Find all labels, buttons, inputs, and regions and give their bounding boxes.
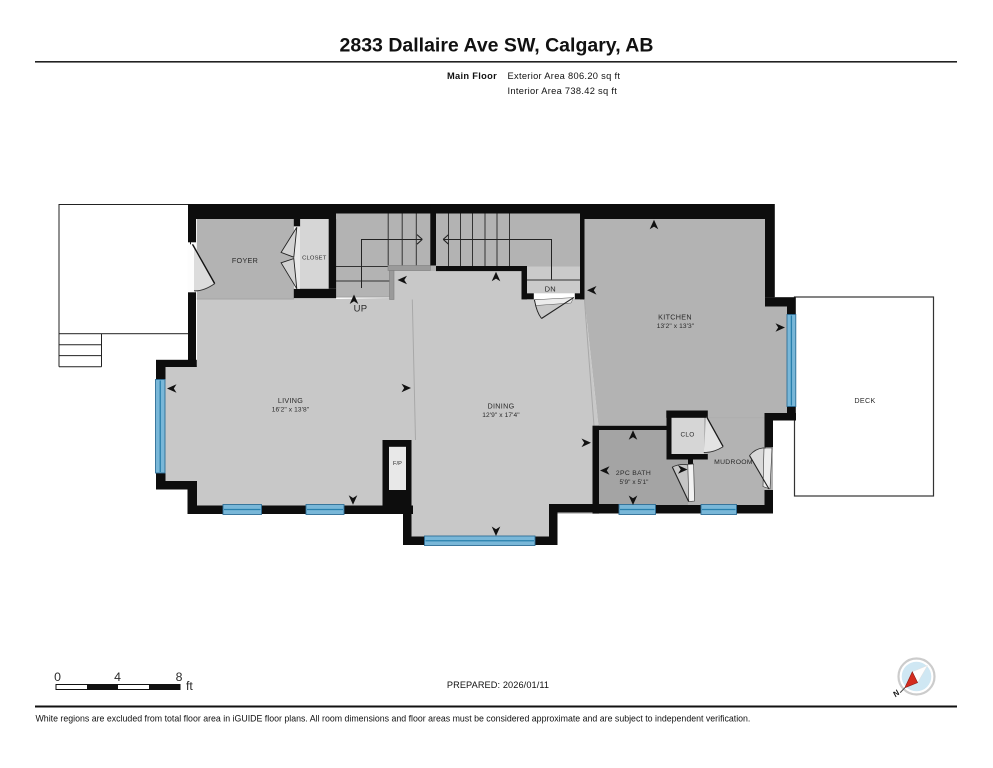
svg-text:4: 4 (114, 670, 121, 684)
svg-text:8: 8 (176, 670, 183, 684)
svg-text:CLO: CLO (680, 432, 694, 439)
svg-text:FOYER: FOYER (232, 256, 258, 265)
svg-text:ft: ft (186, 679, 193, 693)
svg-text:0: 0 (54, 670, 61, 684)
svg-text:KITCHEN: KITCHEN (658, 313, 692, 322)
svg-text:5'9" x 5'1": 5'9" x 5'1" (619, 479, 648, 486)
svg-text:CLOSET: CLOSET (302, 256, 327, 262)
svg-text:F/P: F/P (393, 461, 402, 467)
svg-text:DN: DN (545, 285, 556, 294)
svg-text:12'9" x 17'4": 12'9" x 17'4" (482, 412, 520, 419)
svg-text:White regions are excluded fro: White regions are excluded from total fl… (36, 714, 751, 724)
svg-text:Interior Area 738.42 sq ft: Interior Area 738.42 sq ft (508, 86, 618, 96)
svg-text:Main Floor: Main Floor (447, 71, 497, 81)
svg-text:UP: UP (354, 304, 368, 315)
svg-text:MUDROOM: MUDROOM (714, 459, 753, 466)
svg-text:13'2" x 13'3": 13'2" x 13'3" (657, 323, 695, 330)
svg-text:2833 Dallaire Ave SW, Calgary,: 2833 Dallaire Ave SW, Calgary, AB (340, 35, 654, 57)
svg-text:Exterior Area 806.20 sq ft: Exterior Area 806.20 sq ft (508, 71, 621, 81)
svg-text:DECK: DECK (854, 396, 875, 405)
svg-text:DINING: DINING (488, 402, 515, 411)
svg-text:2PC BATH: 2PC BATH (616, 470, 651, 477)
svg-text:LIVING: LIVING (278, 396, 303, 405)
svg-text:PREPARED: 2026/01/11: PREPARED: 2026/01/11 (447, 680, 549, 690)
svg-text:16'2" x 13'8": 16'2" x 13'8" (272, 407, 310, 414)
